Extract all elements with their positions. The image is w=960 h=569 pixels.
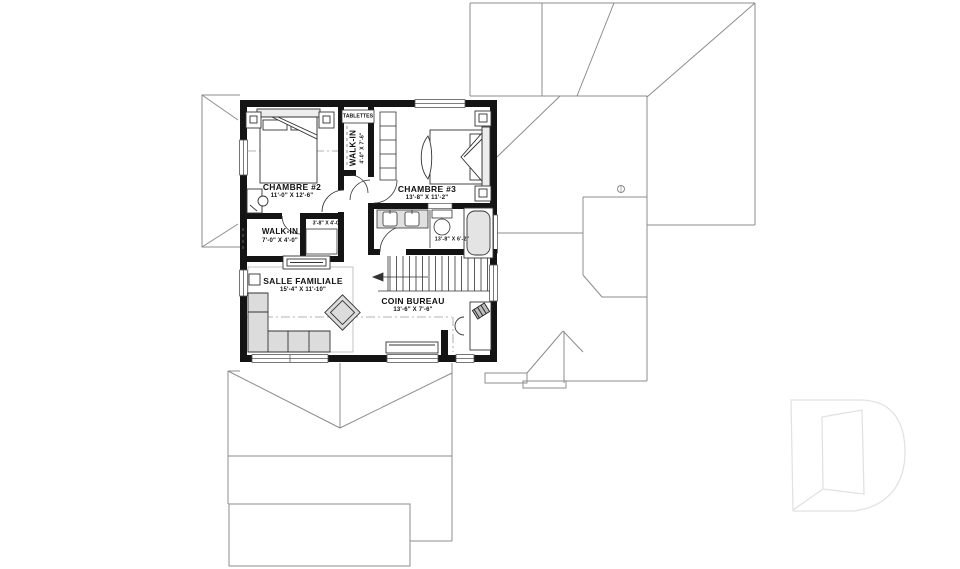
nightstand-chambre3-top <box>475 111 491 126</box>
window-seat <box>386 342 438 353</box>
desk-chambre2 <box>247 189 268 213</box>
label-chambre3-dims: 13'-8" X 11'-2" <box>406 195 449 201</box>
label-coin-bureau-name: COIN BUREAU <box>381 297 444 306</box>
label-closet-dims: 3'-8" X 4'-0" <box>313 221 342 226</box>
label-walkin2-name: WALK-IN <box>262 228 298 236</box>
label-walkin2-dims: 7'-0" X 4'-0" <box>262 238 298 244</box>
wall-niche <box>428 204 452 209</box>
label-salle-familiale-dims: 15'-4" X 11'-10" <box>280 287 326 293</box>
window-salle-left <box>240 270 248 296</box>
label-bathroom-dims: 13'-8" X 6'-2" <box>435 237 469 242</box>
door-bathroom <box>380 226 406 252</box>
armchair <box>325 295 360 330</box>
tv-console <box>283 256 330 269</box>
closet-chambre3 <box>380 112 396 180</box>
end-table <box>249 274 260 285</box>
window-bureau-bottom <box>387 355 438 363</box>
nightstand-chambre2-right <box>319 112 334 128</box>
office-chair <box>455 317 464 335</box>
closet-3-8 <box>306 229 337 254</box>
window-salle-bottom <box>252 355 328 363</box>
floor-plan-canvas: CHAMBRE #2 11'-0" X 12'-6" WALK-IN 7'-0"… <box>0 0 960 569</box>
door-walkin3-b <box>350 180 370 200</box>
label-chambre2-name: CHAMBRE #2 <box>263 183 321 192</box>
floor-plan-drawing <box>0 0 960 569</box>
nightstand-chambre3-bottom <box>475 186 491 201</box>
label-chambre2-dims: 11'-0" X 12'-6" <box>271 193 314 199</box>
toilet <box>432 210 452 235</box>
label-chambre3-name: CHAMBRE #3 <box>398 185 456 194</box>
label-walkin3-name: WALK-IN <box>349 130 358 166</box>
label-tablettes: TABLETTES <box>343 114 373 119</box>
chaise-chambre3 <box>421 136 432 179</box>
nightstand-chambre2-left <box>246 112 261 128</box>
bed-chambre3 <box>421 127 490 189</box>
bathtub <box>464 208 493 258</box>
staircase <box>373 256 490 291</box>
label-walkin3: WALK-IN 4'-0" X 7'-6" <box>349 130 366 166</box>
label-salle-familiale-name: SALLE FAMILIALE <box>263 277 343 286</box>
label-coin-bureau-dims: 13'-6" X 7'-6" <box>393 307 432 313</box>
window-corner-bottom <box>456 355 474 363</box>
sectional-sofa <box>248 293 330 352</box>
door-chambre2 <box>322 190 344 212</box>
bed-chambre2 <box>257 109 320 183</box>
stairs-arrow-head <box>373 273 383 281</box>
window-chambre2-left <box>240 140 248 175</box>
door-chambre3 <box>374 180 397 203</box>
window-stair-right <box>490 265 498 301</box>
window-chambre3-top <box>415 100 465 108</box>
label-walkin3-dims: 4'-0" X 7'-6" <box>360 132 366 163</box>
d-logo-watermark <box>791 400 905 511</box>
vanity-double-sink <box>377 210 430 248</box>
